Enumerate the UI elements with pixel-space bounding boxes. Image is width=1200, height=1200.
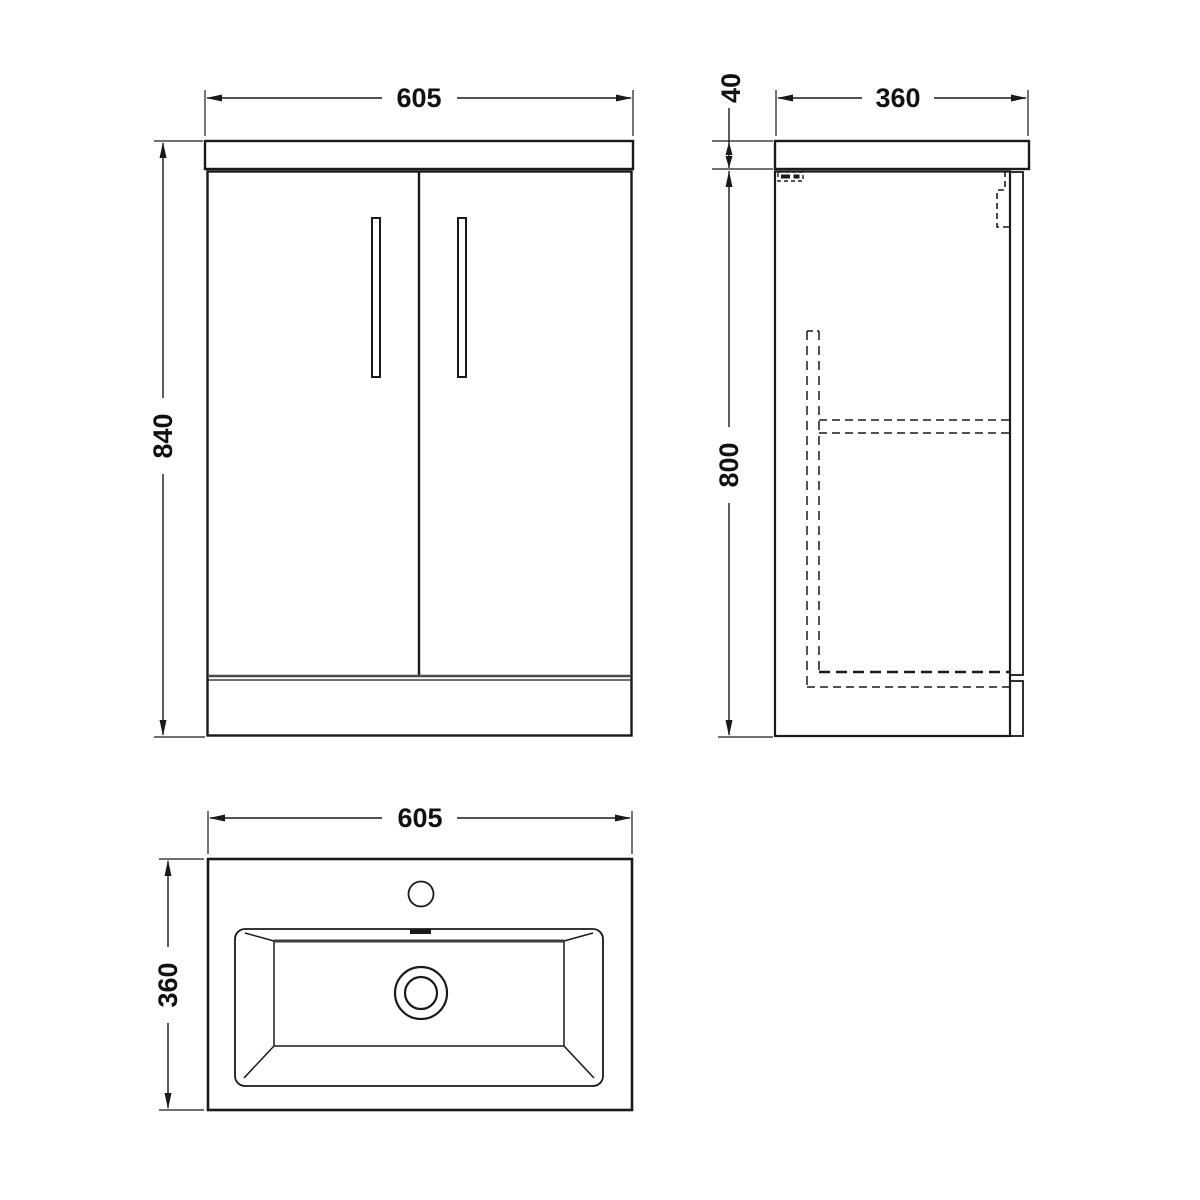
- plan-overflow-slot: [410, 930, 431, 935]
- arrowhead-bottom: [726, 720, 733, 736]
- dim-front-width: 605: [205, 83, 633, 136]
- arrowhead-left: [209, 815, 225, 822]
- front-left-door-handle: [372, 218, 380, 377]
- side-hinge-hidden: [997, 171, 1010, 227]
- side-fixing-bracket-hidden: [778, 172, 803, 181]
- plan-waste-outer: [395, 967, 447, 1019]
- plan-tap-hole: [409, 882, 434, 907]
- plan-bowl-bevels: [244, 933, 594, 1078]
- dim-cabinet-height: 800: [714, 171, 773, 737]
- front-right-door-handle: [458, 218, 466, 377]
- side-shelf-hidden: [819, 420, 1009, 433]
- dim-side-depth: 360: [776, 83, 1028, 136]
- dim-plan-depth: 360: [153, 859, 204, 1110]
- plan-basin-outline: [208, 859, 632, 1110]
- dim-label-plan-depth: 360: [153, 962, 183, 1007]
- arrowhead-top: [726, 142, 733, 155]
- plan-bowl-base: [274, 941, 564, 1046]
- arrowhead-bottom: [726, 156, 733, 168]
- side-door-panel: [1010, 172, 1023, 675]
- drawing-canvas: 605 840: [0, 0, 1200, 1200]
- arrowhead-right: [616, 95, 632, 102]
- arrowhead-bottom: [160, 720, 167, 736]
- dim-front-height: 840: [148, 141, 205, 737]
- dim-label-worktop-thickness: 40: [716, 73, 746, 103]
- dim-plan-width: 605: [208, 803, 632, 854]
- dim-label-side-depth: 360: [875, 83, 920, 113]
- arrowhead-right: [615, 815, 631, 822]
- arrowhead-top: [165, 860, 172, 876]
- dim-label-front-width: 605: [396, 83, 441, 113]
- arrowhead-right: [1011, 95, 1027, 102]
- side-view: [775, 141, 1029, 736]
- dim-label-cabinet-height: 800: [714, 442, 744, 487]
- side-cabinet-body: [775, 172, 1010, 737]
- dim-worktop-thickness: 40: [712, 73, 773, 169]
- arrowhead-left: [206, 95, 222, 102]
- plan-waste-inner: [405, 977, 437, 1009]
- side-interior-hidden: [807, 331, 1009, 687]
- arrowhead-top: [160, 142, 167, 158]
- dim-label-front-height: 840: [148, 413, 178, 458]
- arrowhead-left: [777, 95, 793, 102]
- arrowhead-top: [726, 171, 733, 187]
- side-worktop: [775, 141, 1029, 169]
- plan-view: [208, 859, 632, 1110]
- arrowhead-bottom: [165, 1093, 172, 1109]
- front-view: [205, 141, 633, 736]
- plan-bowl-rim: [235, 929, 603, 1086]
- front-worktop: [205, 141, 633, 169]
- side-plinth-panel: [1010, 681, 1023, 736]
- technical-drawing: 605 840: [0, 0, 1200, 1200]
- dim-label-plan-width: 605: [397, 803, 442, 833]
